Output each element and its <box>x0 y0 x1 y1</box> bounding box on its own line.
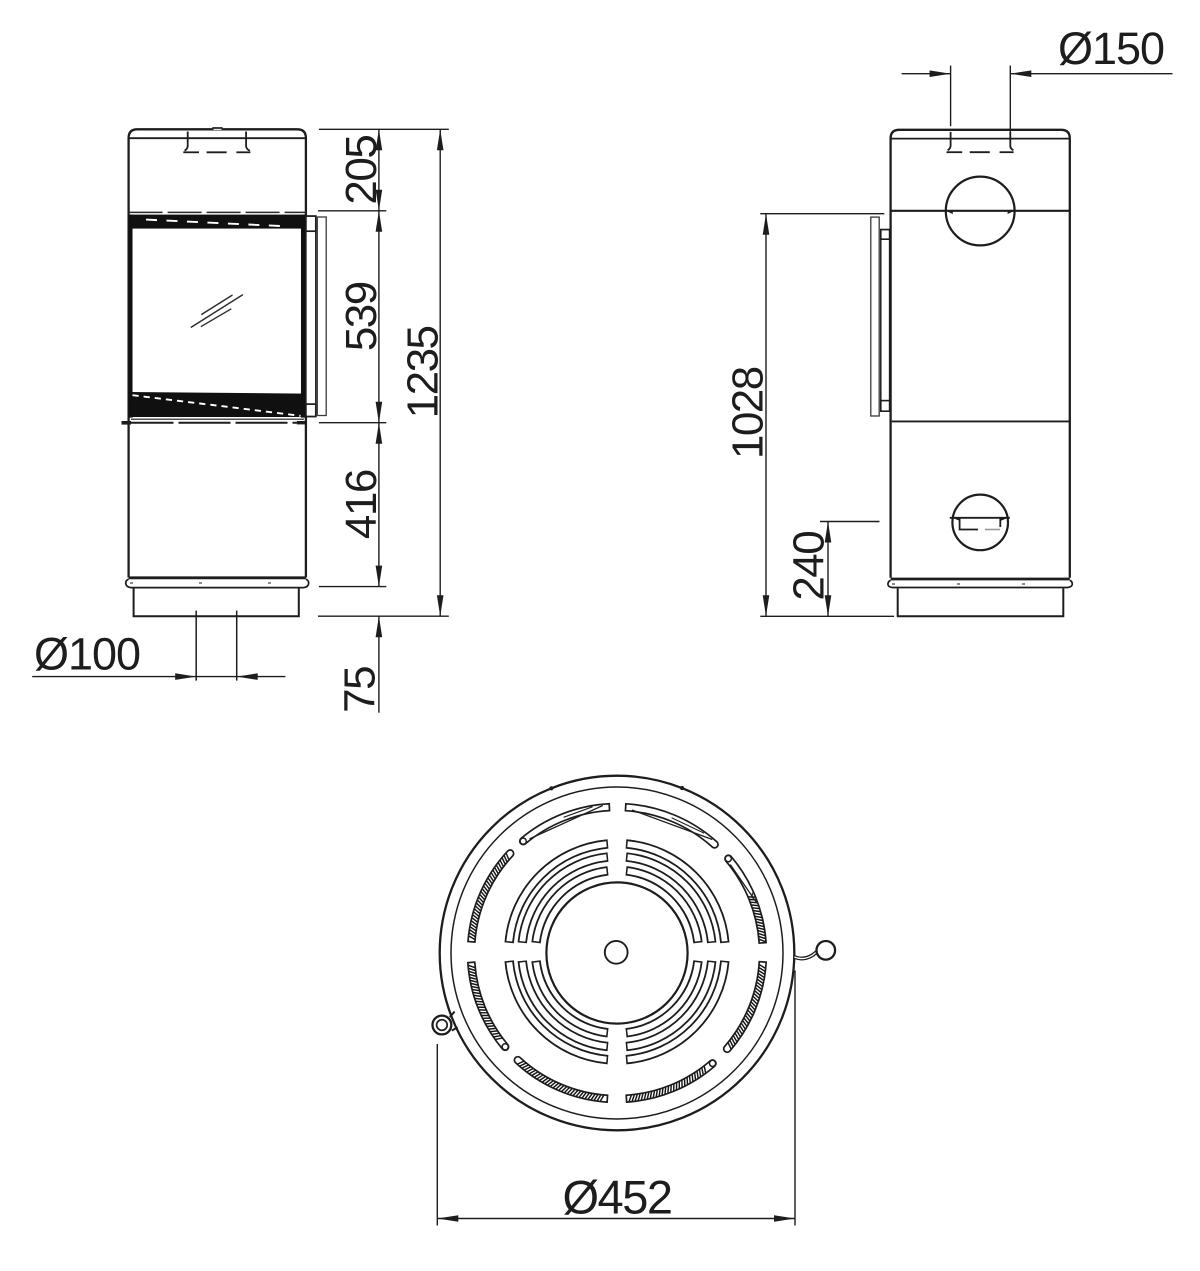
svg-text:539: 539 <box>337 282 386 351</box>
svg-text:416: 416 <box>337 470 386 539</box>
svg-text:1235: 1235 <box>399 326 448 418</box>
svg-text:75: 75 <box>335 667 384 713</box>
svg-text:Ø100: Ø100 <box>34 628 140 679</box>
svg-text:205: 205 <box>337 136 386 205</box>
svg-text:1028: 1028 <box>724 367 773 459</box>
svg-text:240: 240 <box>785 532 834 601</box>
svg-text:Ø150: Ø150 <box>1058 23 1164 74</box>
svg-text:Ø452: Ø452 <box>563 1171 672 1224</box>
